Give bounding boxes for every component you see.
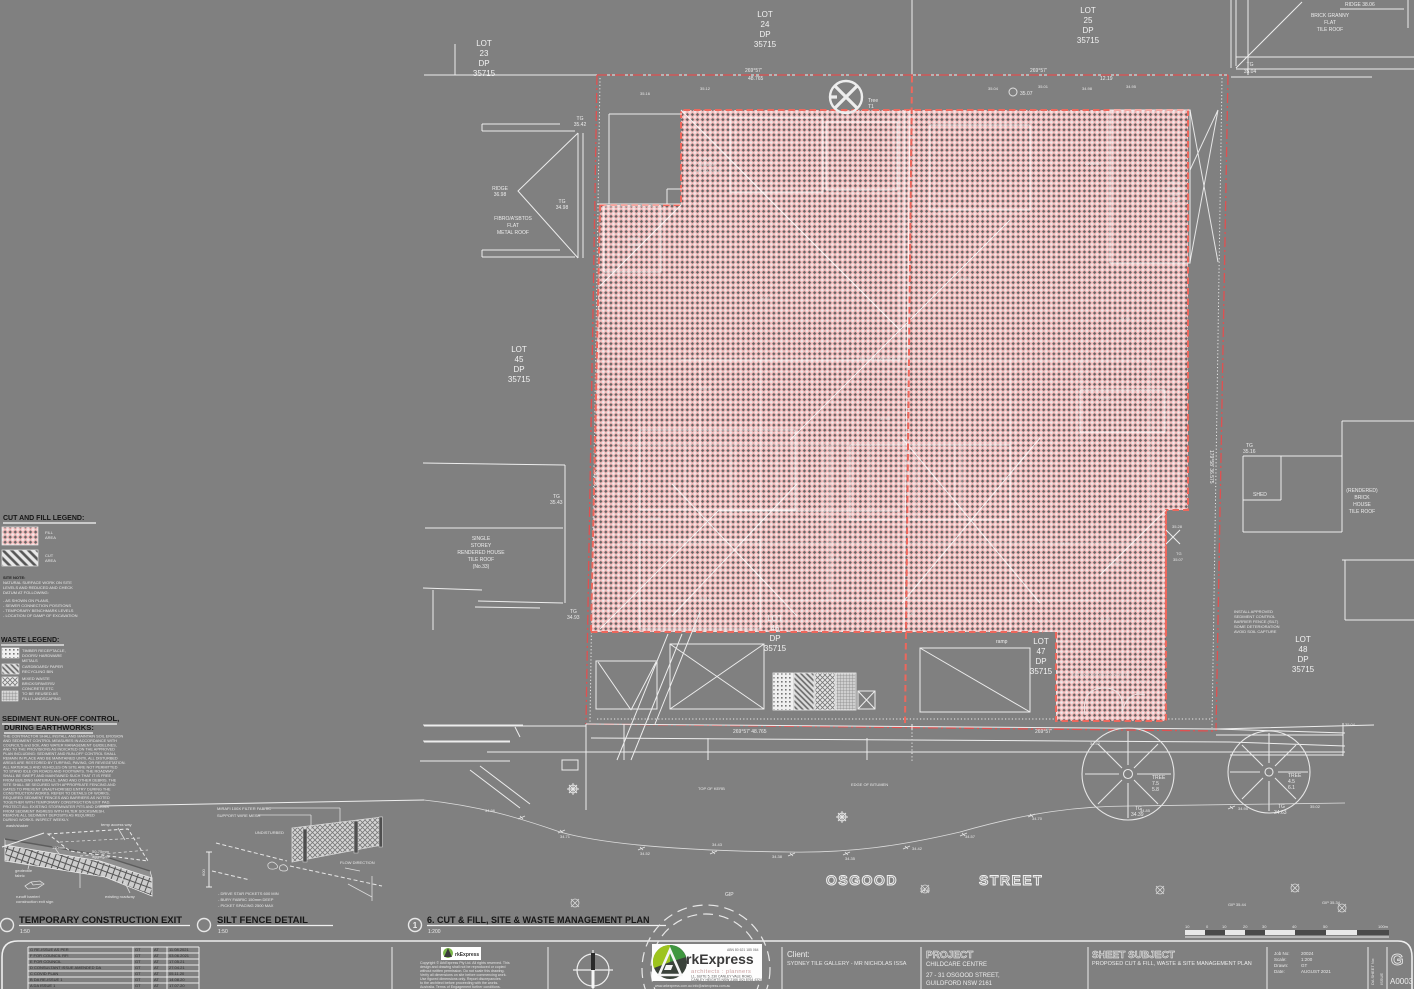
svg-text:35715: 35715 [754,40,777,49]
svg-text:STREET: STREET [979,872,1043,888]
svg-text:CONSTRUCTION WORKS. REFER TO D: CONSTRUCTION WORKS. REFER TO DETAILS OF … [3,792,110,796]
svg-text:30: 30 [1262,924,1267,929]
svg-text:35.40: 35.40 [650,516,661,521]
svg-text:ALL MATERIALS AND VEHICLES ON: ALL MATERIALS AND VEHICLES ON SITE ARE N… [3,765,118,769]
svg-text:34.95: 34.95 [1126,84,1137,89]
svg-text:PORCH: PORCH [1109,561,1124,566]
svg-text:AREA: AREA [45,535,56,540]
svg-text:FILL/ LANDSCAPING: FILL/ LANDSCAPING [22,696,61,701]
svg-text:temp access way: temp access way [101,822,132,827]
svg-text:DURING WORKS. INSPECT WEEKLY.: DURING WORKS. INSPECT WEEKLY. [3,818,69,822]
svg-text:UNDISTURBED: UNDISTURBED [255,830,284,835]
svg-text:T1: T1 [868,104,874,110]
svg-text:48.765: 48.765 [748,76,764,82]
svg-text:BRICK: BRICK [1168,180,1181,185]
svg-text:- BURY FABRIC 150mm DEEP: - BURY FABRIC 150mm DEEP [218,897,274,902]
svg-text:SUPPORT WIRE MESH: SUPPORT WIRE MESH [217,813,261,818]
svg-text:34.95: 34.95 [1238,806,1249,811]
svg-text:PROPOSED CUT & FILL, WASTE & S: PROPOSED CUT & FILL, WASTE & SITE MANAGE… [1092,961,1252,967]
svg-text:LOT: LOT [1295,635,1311,644]
svg-text:B DA RE-ISSUE 1: B DA RE-ISSUE 1 [30,977,63,982]
svg-text:BRICK GRANNY: BRICK GRANNY [1311,13,1350,19]
svg-text:35.22: 35.22 [960,276,971,281]
svg-text:34.25: 34.25 [1100,616,1111,621]
svg-text:35715: 35715 [508,375,531,384]
svg-text:RETAIN EXISTING CONCRETE: RETAIN EXISTING CONCRETE [1072,672,1130,677]
svg-text:35.07: 35.07 [1173,557,1184,562]
svg-text:E FOR COUNCIL: E FOR COUNCIL [30,959,62,964]
svg-text:(RENDERED): (RENDERED) [1346,488,1378,494]
svg-text:269°57': 269°57' [1035,729,1052,735]
svg-text:Scale:: Scale: [1274,957,1287,962]
svg-text:METAL ROOF: METAL ROOF [497,230,529,236]
svg-text:FLOW DIRECTION: FLOW DIRECTION [340,860,375,865]
svg-text:DP: DP [1082,26,1093,35]
svg-text:34.93: 34.93 [567,615,580,621]
svg-text:GARAGE: GARAGE [698,162,715,167]
svg-text:A0003: A0003 [1390,977,1414,986]
svg-text:34.73: 34.73 [1000,476,1011,481]
svg-text:D CONSULTANT ISSUE AMENDED DA: D CONSULTANT ISSUE AMENDED DA [30,965,101,970]
svg-text:GUILDFORD NSW 2161: GUILDFORD NSW 2161 [926,981,993,987]
svg-text:27 - 31 OSGOOD STREET,: 27 - 31 OSGOOD STREET, [926,973,1000,979]
svg-text:MIRAFI 100X FILTER FABRIC: MIRAFI 100X FILTER FABRIC [217,806,271,811]
svg-text:34.96: 34.96 [485,808,496,813]
svg-text:AREAS ARE RESTORED BY TURFING,: AREAS ARE RESTORED BY TURFING, PAVING, O… [3,761,126,765]
svg-text:STOREY: STOREY [471,543,492,549]
svg-text:LOT: LOT [476,39,492,48]
svg-text:34.85: 34.85 [1140,808,1151,813]
svg-text:34.98: 34.98 [1082,86,1093,91]
svg-text:A DA ISSUE 1: A DA ISSUE 1 [30,983,56,988]
svg-text:AVOID SOIL CAPTURE: AVOID SOIL CAPTURE [1234,629,1277,634]
svg-text:SYDNEY TILE GALLERY - MR NICHO: SYDNEY TILE GALLERY - MR NICHOLAS ISSA [787,961,907,967]
svg-text:150mm: 150mm [52,845,66,850]
svg-text:AT: AT [154,965,159,970]
svg-text:SHED: SHED [1253,492,1267,498]
svg-text:DATUM AT FOLLOWING:: DATUM AT FOLLOWING: [3,590,49,595]
svg-text:TOP OF KERB: TOP OF KERB [698,786,725,791]
svg-text:34.61: 34.61 [1060,541,1071,546]
svg-text:35.28: 35.28 [1172,524,1183,529]
svg-text:AT: AT [154,977,159,982]
svg-text:DURING EARTHWORKS:: DURING EARTHWORKS: [4,723,94,732]
svg-text:ROOF: ROOF [1168,198,1180,203]
svg-text:SHALL BE SWEPT AND MAINTAINED: SHALL BE SWEPT AND MAINTAINED SUCH THAT … [3,774,112,778]
svg-text:TILE ROOF: TILE ROOF [1349,509,1375,515]
svg-text:35.73: 35.73 [700,386,711,391]
svg-text:35715: 35715 [473,69,496,78]
svg-text:35.04: 35.04 [1244,69,1257,75]
svg-text:35715: 35715 [1292,665,1315,674]
svg-text:ABN 80 621 185 064: ABN 80 621 185 064 [727,948,759,952]
svg-text:LOT: LOT [767,614,783,623]
svg-text:CUT AND FILL LEGEND:: CUT AND FILL LEGEND: [3,515,84,522]
svg-text:TILE ROOF: TILE ROOF [468,557,494,563]
svg-text:35.12: 35.12 [700,596,711,601]
svg-text:34.98: 34.98 [880,416,891,421]
svg-text:34.57: 34.57 [965,834,976,839]
svg-text:GATES TO PREVENT UNAUTHORISED: GATES TO PREVENT UNAUTHORISED ENTRY DURI… [3,787,111,791]
svg-text:rkExpress: rkExpress [455,952,479,958]
svg-text:GIP 35.34: GIP 35.34 [1322,900,1341,905]
svg-text:TEMPORARY CONSTRUCTION EXIT: TEMPORARY CONSTRUCTION EXIT [19,915,182,926]
svg-text:34.52: 34.52 [640,851,651,856]
svg-text:5.8: 5.8 [1152,787,1159,793]
svg-text:DP: DP [1035,657,1046,666]
svg-text:40: 40 [1292,924,1297,929]
svg-text:GT: GT [135,953,141,958]
svg-text:REMAIN IN PLACE AND BE MAINTAI: REMAIN IN PLACE AND BE MAINTAINED UNTIL … [3,757,118,761]
svg-text:GT: GT [135,983,141,988]
svg-text:20: 20 [1243,924,1248,929]
svg-text:34.92: 34.92 [1090,741,1101,746]
svg-text:34.71: 34.71 [560,834,571,839]
svg-text:existing roadway: existing roadway [105,894,135,899]
svg-text:fabric: fabric [15,873,25,878]
svg-text:AT: AT [154,953,159,958]
svg-text:ISSUE: ISSUE [1379,973,1384,985]
svg-text:RENDERED HOUSE: RENDERED HOUSE [457,550,505,556]
svg-text:G: G [1391,952,1403,969]
svg-text:FROM SEDIMENT INGRESS WITH FIL: FROM SEDIMENT INGRESS WITH FILTER SOCKS/… [3,809,105,813]
svg-text:GT: GT [135,947,141,952]
svg-text:SITE SHALL BE SECURED WITH APP: SITE SHALL BE SECURED WITH APPROPRIATE F… [3,783,116,787]
svg-text:23: 23 [480,49,489,58]
svg-text:LOT: LOT [757,10,773,19]
svg-text:45: 45 [515,355,524,364]
svg-text:GIP 35.44: GIP 35.44 [1228,902,1247,907]
svg-text:GT: GT [135,959,141,964]
svg-text:COUNCIL'S and SOIL AND WATER M: COUNCIL'S and SOIL AND WATER MANAGEMENT … [3,743,117,747]
svg-text:34.96: 34.96 [1120,316,1131,321]
svg-text:03.06.2021: 03.06.2021 [169,953,190,958]
svg-text:34.98: 34.98 [556,205,569,211]
svg-text:AUGUST 2021: AUGUST 2021 [1301,969,1331,974]
svg-text:20024: 20024 [1301,951,1314,956]
svg-text:36.98: 36.98 [494,192,507,198]
svg-text:DP: DP [759,30,770,39]
svg-text:35.42: 35.42 [574,122,587,128]
svg-text:- PICKET SPACING 2500 MAX: - PICKET SPACING 2500 MAX [218,903,274,908]
svg-text:LOT: LOT [1033,637,1049,646]
svg-text:rkExpress: rkExpress [686,951,754,967]
svg-text:TO STAND IDLE ON ROADS AND FOO: TO STAND IDLE ON ROADS AND FOOTWAYS. THE… [3,770,114,774]
svg-text:17.07.20: 17.07.20 [169,983,185,988]
svg-text:35.12: 35.12 [700,86,711,91]
svg-text:G RE-ISSUE AS PER: G RE-ISSUE AS PER [30,947,69,952]
svg-text:DP: DP [478,59,489,68]
svg-text:1:200: 1:200 [428,929,441,935]
svg-text:(No.33): (No.33) [473,564,490,570]
svg-text:12.19: 12.19 [1100,76,1113,82]
svg-text:6.1: 6.1 [1288,785,1295,791]
svg-text:PLAN INCLUDING: SEDIMENT AND R: PLAN INCLUDING: SEDIMENT AND RUN-OFF CON… [3,752,116,756]
svg-text:6. CUT & FILL, SITE & WASTE MA: 6. CUT & FILL, SITE & WASTE MANAGEMENT P… [427,915,650,925]
svg-text:SINGLE: SINGLE [472,536,491,542]
svg-text:No.27-31 OSGOOD St: No.27-31 OSGOOD St [860,356,901,361]
svg-text:C COVID PLAN: C COVID PLAN [30,971,58,976]
svg-text:17.05.21: 17.05.21 [169,959,185,964]
svg-text:RIDGE 38.06: RIDGE 38.06 [1345,2,1375,8]
svg-text:50: 50 [1323,924,1328,929]
svg-text:F FOR COUNCIL RFI: F FOR COUNCIL RFI [30,953,69,958]
svg-text:PATIO: PATIO [1099,396,1110,401]
svg-text:AT: AT [154,971,159,976]
svg-text:AREA: AREA [45,558,56,563]
svg-text:34.38: 34.38 [772,854,783,859]
svg-text:TILE: TILE [1170,192,1179,197]
svg-text:34.42: 34.42 [912,846,923,851]
svg-text:269°57': 269°57' [1030,68,1047,74]
svg-text:SHED: SHED [628,236,639,241]
svg-text:CANLEY HEIGHTS NSW 2166 (02): CANLEY HEIGHTS NSW 2166 (02) 8764 4324 [691,978,762,982]
svg-text:EDGE OF BITUMEN: EDGE OF BITUMEN [851,782,888,787]
svg-text:35.04: 35.04 [1345,722,1356,727]
svg-text:DA SHEET No:: DA SHEET No: [1370,958,1375,985]
svg-text:Australia. Terms of Engagement: Australia. Terms of Engagement further c… [420,985,501,989]
svg-text:GARAGE: GARAGE [1165,186,1182,191]
svg-text:DP: DP [513,365,524,374]
svg-text:35.01: 35.01 [1038,84,1049,89]
svg-text:RECYCLING BIN: RECYCLING BIN [22,669,53,674]
svg-text:construction exit sign: construction exit sign [16,899,53,904]
svg-text:Job No:: Job No: [1274,951,1290,956]
svg-text:35.61: 35.61 [760,296,771,301]
svg-text:TG: TG [1176,551,1182,556]
svg-text:DP: DP [1297,655,1308,664]
svg-text:14.08.20: 14.08.20 [169,977,185,982]
svg-text:34.63: 34.63 [1274,810,1287,816]
svg-text:35.43: 35.43 [550,500,563,506]
svg-text:PROTECT ALL EXISTING STORMWATE: PROTECT ALL EXISTING STORMWATER PITS AND… [3,805,110,809]
svg-text:AND TO THE PROVISIONS AS INDIC: AND TO THE PROVISIONS AS INDICATED ON TH… [3,748,115,752]
svg-text:SILT FENCE DETAIL: SILT FENCE DETAIL [217,915,308,926]
svg-text:269°57' 48.765: 269°57' 48.765 [733,729,767,735]
svg-text:35.07: 35.07 [1020,91,1033,97]
svg-text:SHEET SUBJECT: SHEET SUBJECT [1092,950,1175,961]
svg-text:GT: GT [135,971,141,976]
svg-text:PROJECT: PROJECT [926,950,973,961]
svg-text:1:50: 1:50 [218,929,228,935]
svg-text:TOGETHER WITH TEMPORARY CONSTR: TOGETHER WITH TEMPORARY CONSTRUCTION EXI… [3,801,110,805]
svg-text:HOUSE: HOUSE [1353,502,1371,508]
svg-text:GT: GT [135,977,141,982]
svg-text:05.11.20: 05.11.20 [169,971,185,976]
svg-text:www.arkexpress.com.au info@ar: www.arkexpress.com.au info@arkexpress.co… [655,984,730,988]
svg-text:35.16: 35.16 [1243,449,1256,455]
svg-text:Date:: Date: [1274,969,1285,974]
svg-text:GT: GT [135,965,141,970]
svg-text:CHILDCARE CENTRE: CHILDCARE CENTRE [926,962,987,968]
svg-text:LOT: LOT [1080,6,1096,15]
svg-text:FROM BUILDING MATERIALS, SAND: FROM BUILDING MATERIALS, SAND AND OTHER … [3,779,117,783]
svg-text:ramp: ramp [996,639,1008,645]
svg-text:WASTE LEGEND:: WASTE LEGEND: [1,637,59,644]
svg-text:Client:: Client: [787,950,810,959]
svg-text:AND SEDIMENT CONTROL MEASURES: AND SEDIMENT CONTROL MEASURES IN ACCORDA… [3,739,117,743]
svg-text:GIP: GIP [725,892,734,898]
svg-text:BRICK: BRICK [1354,495,1370,501]
svg-text:24: 24 [761,20,770,29]
svg-text:AT: AT [154,947,159,952]
svg-text:METALS: METALS [22,658,38,663]
svg-text:1: 1 [413,921,418,930]
svg-text:1:200: 1:200 [1301,957,1313,962]
svg-text:35.16: 35.16 [640,91,651,96]
svg-text:METAL ROOF: METAL ROOF [696,168,722,173]
svg-text:AT: AT [154,983,159,988]
svg-text:35715: 35715 [1077,36,1100,45]
svg-text:34.43: 34.43 [712,842,723,847]
svg-text:34.70: 34.70 [1032,816,1043,821]
svg-text:AWNING: AWNING [1085,161,1101,166]
svg-text:100m: 100m [1378,924,1389,929]
svg-text:FLAT: FLAT [507,223,519,229]
svg-text:TILE ROOF: TILE ROOF [1317,27,1343,33]
svg-text:FIBRO/A'SBTOS: FIBRO/A'SBTOS [494,216,532,222]
svg-text:46: 46 [771,624,780,633]
svg-text:35.02: 35.02 [1310,804,1321,809]
svg-text:34.35: 34.35 [845,856,856,861]
svg-text:1:50: 1:50 [20,929,30,935]
svg-text:FIBRO: FIBRO [700,156,712,161]
svg-text:35715: 35715 [764,644,787,653]
svg-text:Drawn:: Drawn: [1274,963,1288,968]
svg-text:179°58' 36.575: 179°58' 36.575 [1208,450,1214,484]
svg-text:25: 25 [1084,16,1093,25]
svg-text:10: 10 [1185,924,1190,929]
svg-text:11.08.2021: 11.08.2021 [169,947,189,952]
svg-text:10: 10 [1222,924,1227,929]
svg-text:35.46: 35.46 [628,242,639,247]
svg-text:SEDIMENT RUN-OFF CONTROL,: SEDIMENT RUN-OFF CONTROL, [2,714,119,723]
svg-text:- DRIVE STAR PICKETS 600 MIN: - DRIVE STAR PICKETS 600 MIN [218,891,279,896]
svg-text:THE CONTRACTOR SHALL INSTALL A: THE CONTRACTOR SHALL INSTALL AND MAINTAI… [3,735,124,739]
svg-text:TG: TG [1247,62,1254,68]
svg-text:REQUIRED SEDIMENT FENCES AND B: REQUIRED SEDIMENT FENCES AND BARRIERS AS… [3,796,110,800]
svg-text:OSGOOD: OSGOOD [826,872,898,888]
svg-text:35.04: 35.04 [988,86,999,91]
svg-text:REMOVE ALL SEDIMENT DEPOSITS A: REMOVE ALL SEDIMENT DEPOSITS AS REQUIRED [3,814,95,818]
svg-text:GT: GT [1301,963,1308,968]
svg-text:FLAT: FLAT [1324,20,1336,26]
svg-text:269°57': 269°57' [745,68,762,74]
svg-text:47: 47 [1037,647,1046,656]
svg-text:AT: AT [154,959,159,964]
svg-text:LOT: LOT [511,345,527,354]
svg-text:600: 600 [201,869,206,876]
svg-text:27.04.21: 27.04.21 [169,965,185,970]
svg-text:aggregate: aggregate [92,854,111,859]
svg-text:35715: 35715 [1030,667,1053,676]
svg-text:wash/shaker: wash/shaker [6,823,29,828]
svg-text:359°58': 359°58' [592,470,598,487]
svg-text:DP: DP [769,634,780,643]
svg-text:- LOCATION OF DAMP OF EXCAVATI: - LOCATION OF DAMP OF EXCAVATION [3,613,78,618]
svg-text:48: 48 [1299,645,1308,654]
svg-text:34.90: 34.90 [830,556,841,561]
